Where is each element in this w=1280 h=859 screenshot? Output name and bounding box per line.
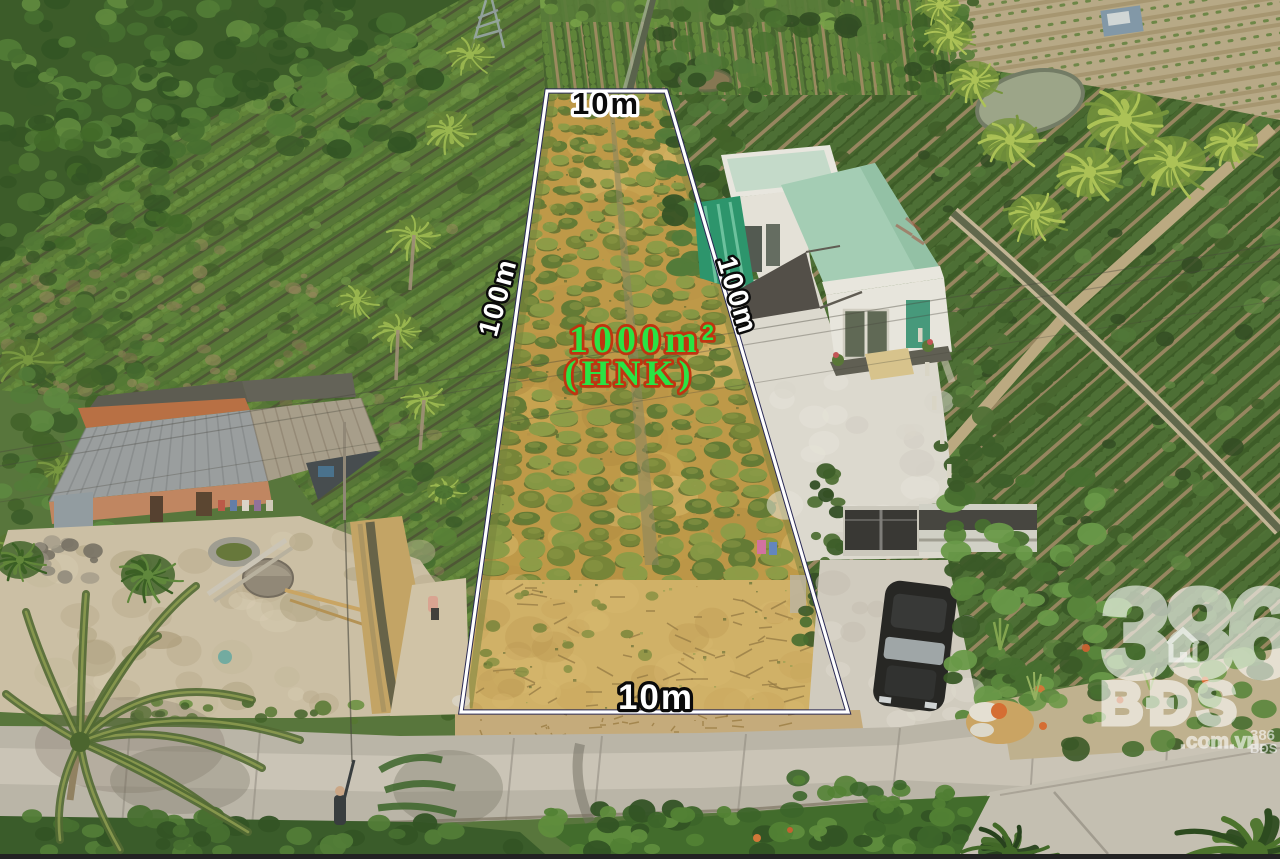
svg-text:(HNK): (HNK) — [565, 353, 696, 393]
svg-text:10m: 10m — [618, 678, 694, 717]
svg-text:.com.vn: .com.vn — [1180, 730, 1259, 753]
svg-text:BĐS: BĐS — [1250, 741, 1278, 756]
svg-text:BĐS: BĐS — [1100, 670, 1242, 737]
svg-text:10m: 10m — [572, 86, 640, 121]
